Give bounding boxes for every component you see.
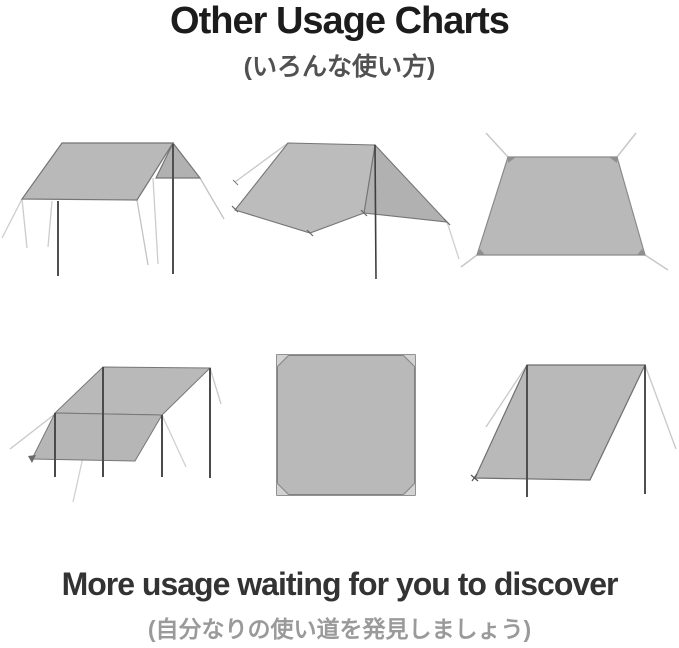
flat-square-sheet-diagram (277, 355, 415, 495)
product-usage-infographic: Other Usage Charts (いろんな使い方) (0, 0, 679, 648)
page-subtitle: (いろんな使い方) (0, 47, 679, 83)
rect-canopy-two-poles-diagram (2, 143, 224, 276)
footer-submessage: (自分なりの使い道を発見しましょう) (0, 610, 679, 644)
lean-to-four-poles-diagram (10, 367, 221, 502)
a-frame-shelter-diagram (232, 143, 459, 279)
page-title: Other Usage Charts (0, 0, 679, 43)
ground-sheet-trapezoid-diagram (461, 133, 668, 270)
slanted-windbreak-diagram (471, 365, 676, 497)
footer-message: More usage waiting for you to discover (0, 566, 679, 603)
usage-diagrams-canvas (0, 110, 679, 530)
